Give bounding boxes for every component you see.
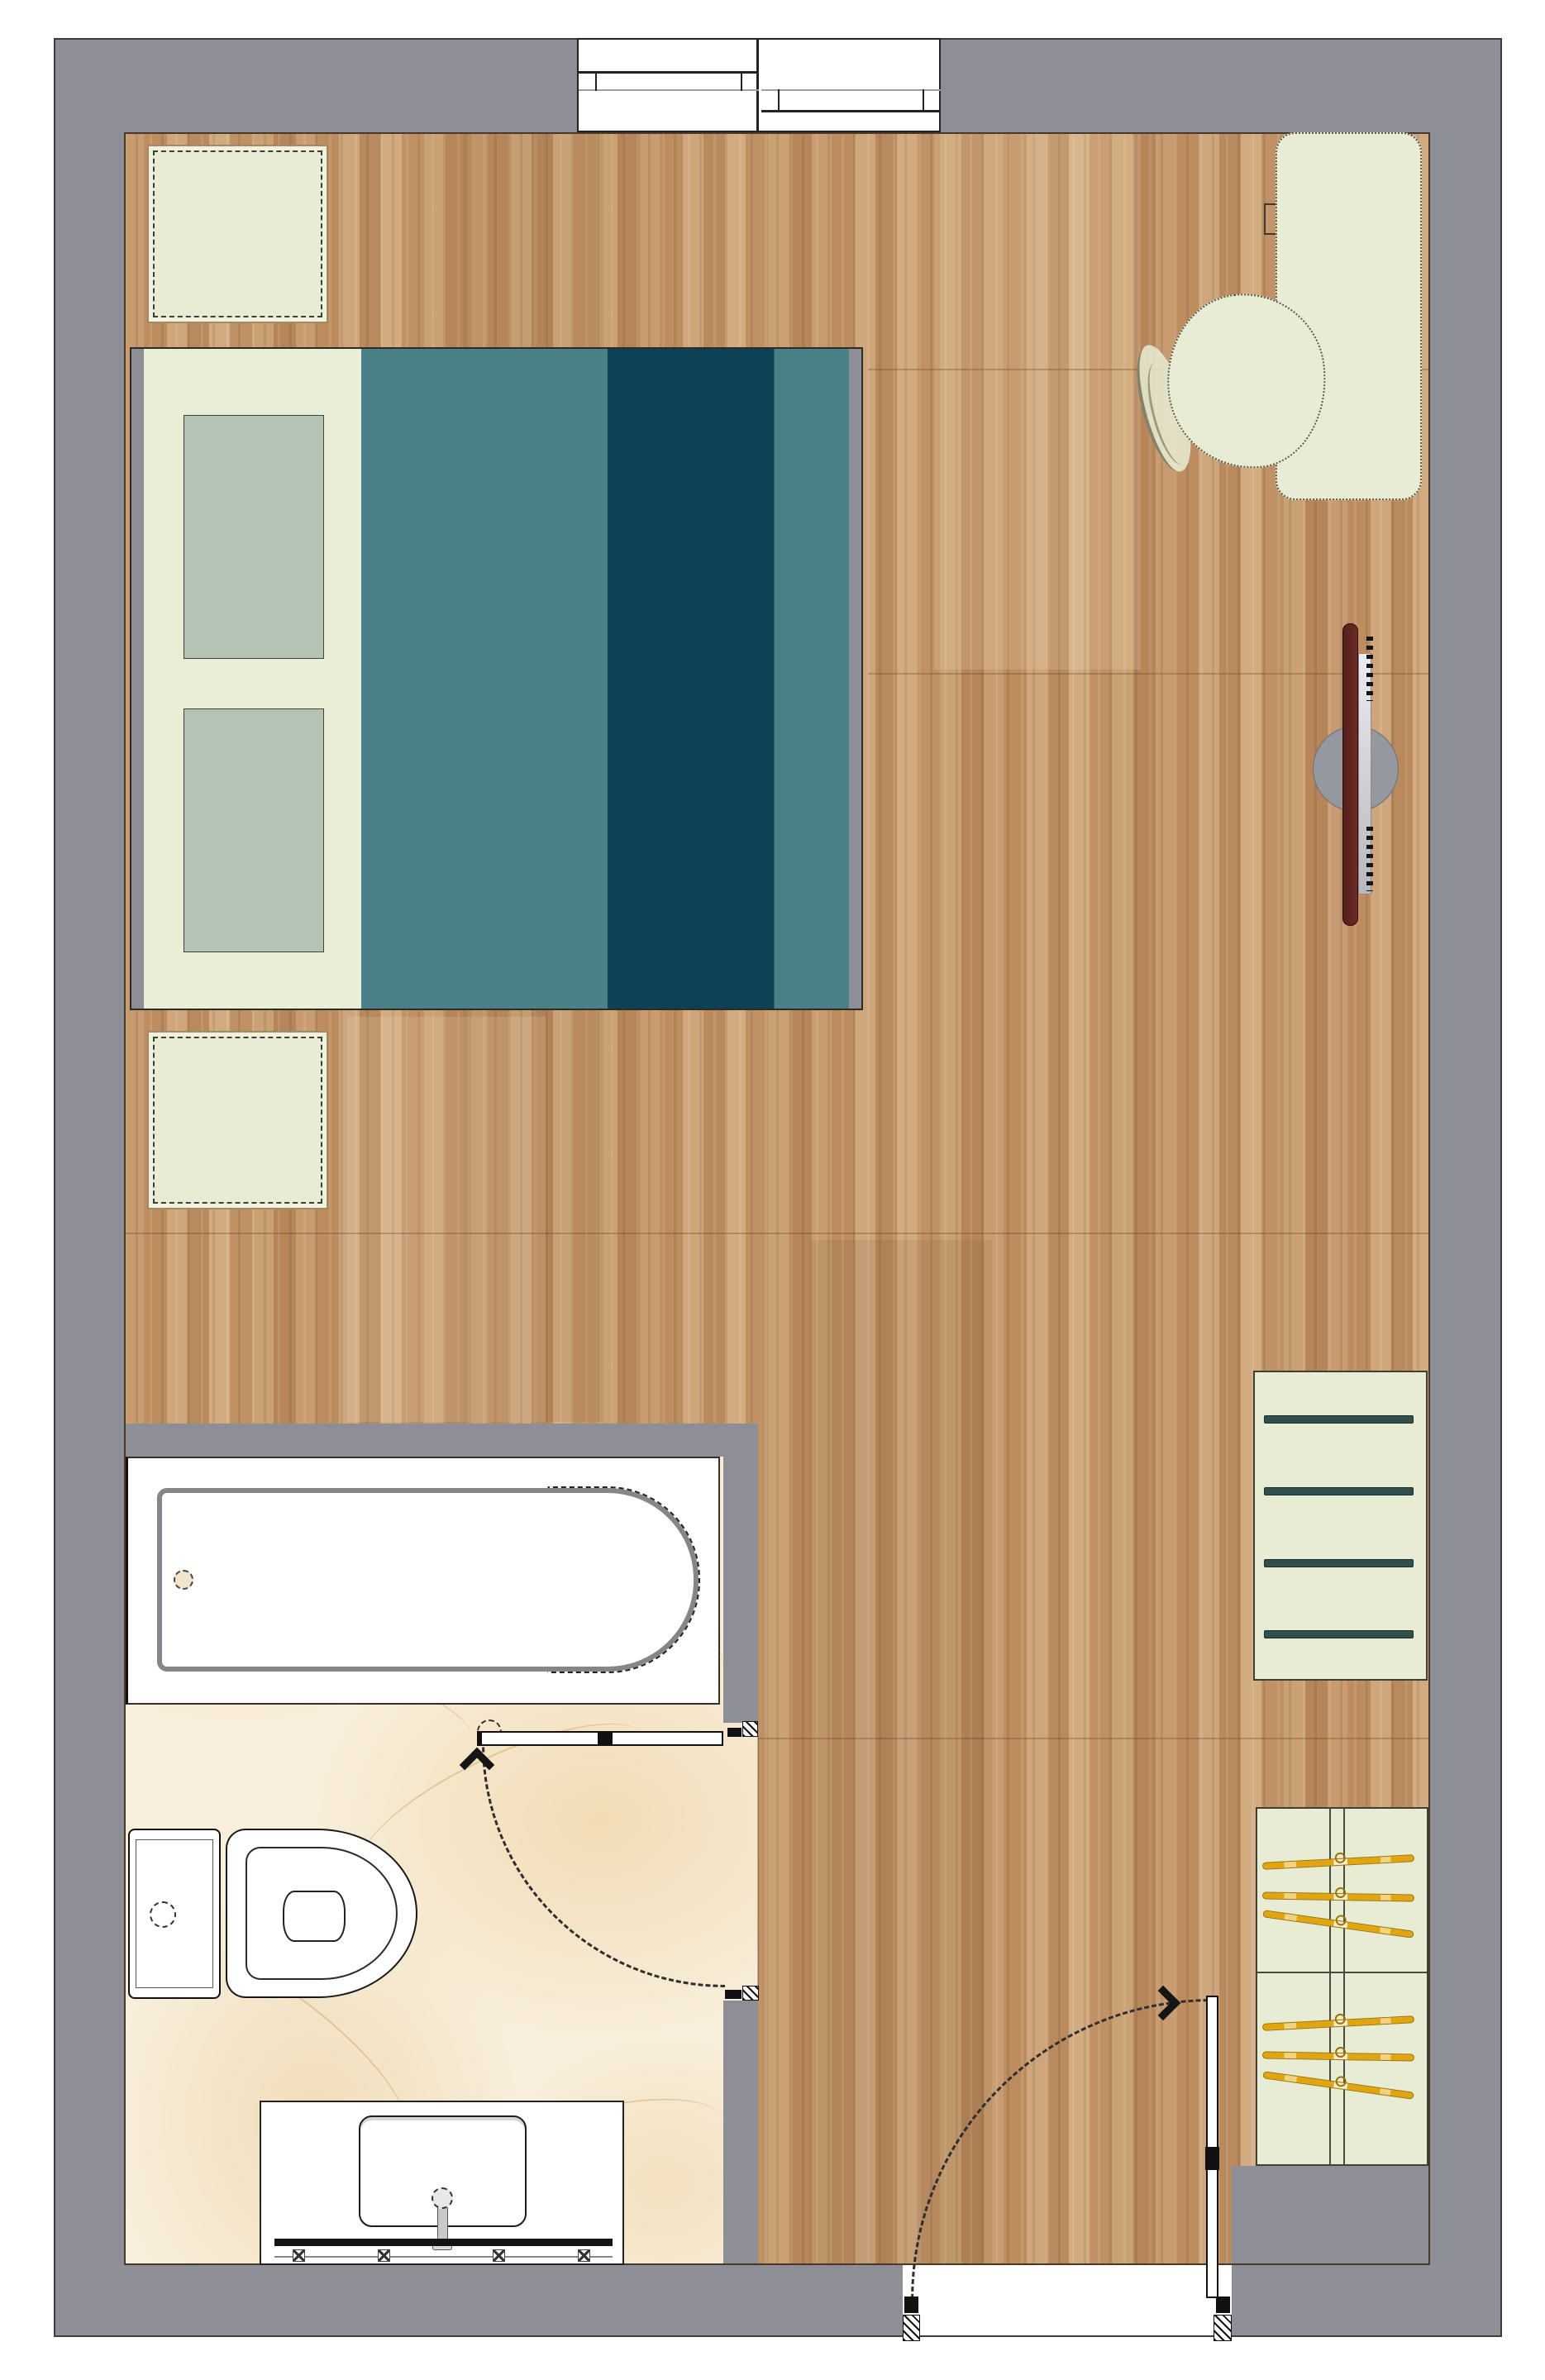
toilet-flush-button: [150, 1901, 176, 1928]
towel-bar-bracket: [293, 2249, 305, 2262]
toilet-bowl: [226, 1829, 417, 1998]
window-sash-right: [761, 40, 941, 131]
window-mullion: [579, 71, 759, 74]
entrance-door-jamb-right: [1216, 2297, 1230, 2313]
nightstand-top: [147, 145, 328, 323]
window-glass-line: [761, 89, 941, 91]
window: [577, 38, 941, 132]
drawer-handle: [1264, 1487, 1414, 1495]
bed-pillow-1: [184, 415, 324, 659]
dresser: [1253, 1371, 1428, 1681]
towel-bar: [274, 2239, 613, 2246]
nightstand-dashed-top: [153, 1037, 322, 1204]
window-glass-line: [579, 89, 759, 91]
entrance-door-frame-right: [1214, 2315, 1232, 2341]
entrance-door-leaf: [1206, 1996, 1218, 2298]
nightstand-dashed-top: [153, 150, 322, 317]
window-sash-left: [579, 40, 759, 131]
window-tick: [778, 89, 780, 111]
clothes-hanger: [1262, 1854, 1414, 1870]
bathtub-drain: [174, 1570, 193, 1590]
window-tick: [595, 71, 597, 91]
clothes-hanger: [1262, 1891, 1414, 1901]
entrance-door-frame-left: [903, 2315, 920, 2341]
clothes-hanger: [1262, 2071, 1414, 2100]
entrance-door-jamb-left: [904, 2297, 918, 2313]
tv-vent-ticks: [1366, 827, 1373, 891]
faucet-icon: [432, 2187, 453, 2209]
bathroom-door-frame-top: [742, 1721, 758, 1737]
wardrobe-shelf-line: [1257, 1972, 1427, 1973]
towel-bar-bracket: [378, 2249, 390, 2262]
door-handle-block: [1205, 2147, 1219, 2170]
bed-pillow-2: [184, 708, 324, 952]
wardrobe: [1256, 1807, 1428, 2166]
drawer-handle: [1264, 1559, 1414, 1567]
bathroom-door-jamb-top: [727, 1728, 742, 1737]
towel-bar-bracket: [578, 2249, 590, 2262]
door-handle-block: [598, 1733, 613, 1744]
towel-bar-bracket: [493, 2249, 505, 2262]
toilet-seat-hole: [283, 1891, 346, 1942]
clothes-hanger: [1262, 1910, 1414, 1939]
nightstand-bottom: [147, 1031, 328, 1209]
clothes-hanger: [1262, 2015, 1414, 2031]
bed-rail-left: [131, 349, 144, 1009]
drawer-handle: [1264, 1415, 1414, 1424]
bathroom-door-leaf: [477, 1731, 723, 1746]
tv-screen: [1342, 623, 1358, 926]
bed-rail-right: [849, 349, 861, 1009]
bathroom-door-jamb-bottom: [725, 1990, 742, 1999]
vanity-counter: [260, 2101, 624, 2265]
window-tick: [741, 71, 742, 91]
tv-vent-ticks: [1366, 637, 1373, 701]
clothes-hanger: [1262, 2051, 1414, 2061]
towel-bar-rail: [274, 2256, 613, 2258]
bed-duvet: [361, 349, 849, 1009]
drawer-handle: [1264, 1630, 1414, 1638]
bathroom-door-frame-bottom: [742, 1986, 759, 2001]
window-mullion: [761, 110, 941, 112]
toilet-tank: [128, 1829, 221, 1999]
floor-plan: [0, 0, 1545, 2380]
bed: [130, 347, 863, 1010]
window-tick: [923, 89, 924, 111]
